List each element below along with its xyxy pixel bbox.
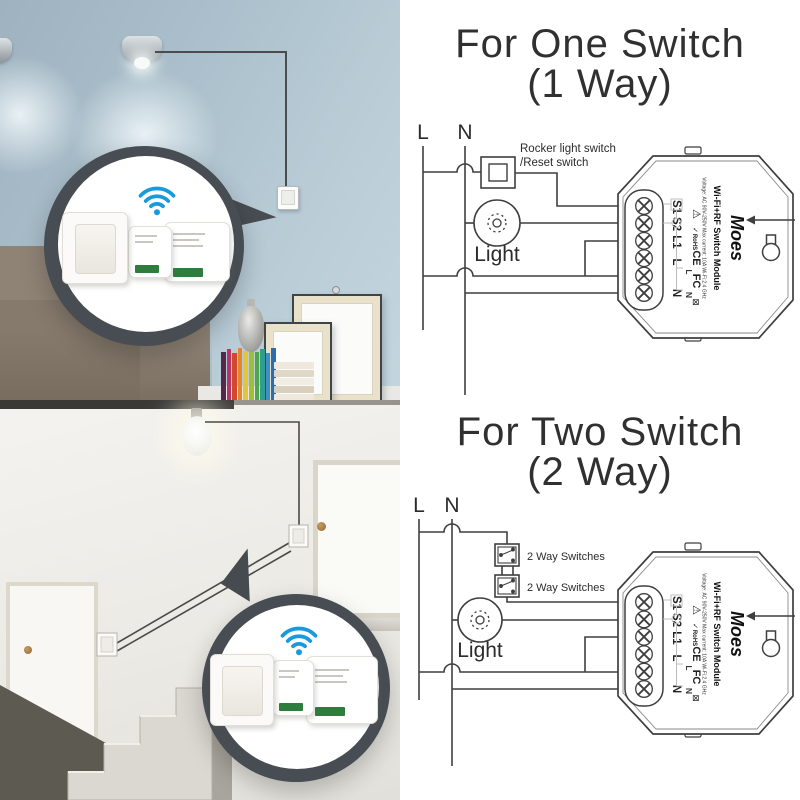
live-feed-wire [419, 664, 619, 672]
sofa-shadow [0, 330, 212, 400]
rocker-note-line2: /Reset switch [520, 157, 588, 169]
switch-module-photo [164, 222, 230, 282]
light-label: Light [474, 243, 520, 266]
callout-circle [44, 146, 244, 346]
n-line-label: N [457, 121, 472, 144]
power-wire [285, 51, 287, 187]
two-way-switches-label-2: 2 Way Switches [527, 582, 605, 594]
wall-switch-lower [97, 633, 117, 656]
l-line-label: L [413, 494, 425, 517]
rocker-note-line1: Rocker light switch [520, 143, 616, 155]
diagram-one-switch: For One Switch (1 Way) L N [400, 0, 800, 400]
n-line-label: N [444, 494, 459, 517]
one-way-wiring-diagram: L N Rocker light switch [400, 0, 800, 400]
wifi-icon [276, 620, 322, 656]
power-wire [155, 51, 287, 53]
two-way-wiring-diagram: L N [400, 400, 800, 800]
light-symbol [458, 598, 502, 642]
diagram-two-switch: For Two Switch (2 Way) L N [400, 400, 800, 800]
rocker-switch-photo [62, 212, 128, 284]
rocker-switch-symbol [481, 157, 515, 188]
callout-circle [202, 594, 390, 782]
spotlight-bulb [134, 57, 150, 69]
wall-switch-upper [289, 525, 308, 547]
light-symbol [474, 200, 520, 246]
wall-switch [277, 186, 299, 210]
frame-hook [332, 286, 340, 294]
bridge-wire [585, 241, 619, 276]
switch-feed-wire [423, 164, 481, 172]
traveler-wires [502, 566, 513, 575]
switch-module [618, 147, 795, 341]
live-feed-wire [423, 268, 619, 276]
switch-feed-wire [419, 524, 507, 544]
switch-module [618, 543, 795, 737]
book-row [221, 348, 277, 400]
two-way-switches-label-1: 2 Way Switches [527, 551, 605, 563]
light-label: Light [457, 639, 503, 662]
wifi-icon [134, 180, 180, 216]
switch-return-wire [515, 173, 619, 206]
switch-module-photo [128, 226, 172, 278]
switch-module-photo [306, 656, 378, 724]
photo-living-room [0, 0, 400, 400]
bridge-wire [585, 637, 619, 672]
rocker-switch-photo [210, 654, 274, 726]
switch-module-photo [272, 660, 314, 716]
product-sheet: For One Switch (1 Way) L N [0, 0, 800, 800]
book-stack [274, 362, 314, 400]
metal-vase [238, 306, 264, 352]
photo-staircase [0, 400, 400, 800]
l-line-label: L [417, 121, 429, 144]
switch-return-wire [507, 597, 619, 602]
